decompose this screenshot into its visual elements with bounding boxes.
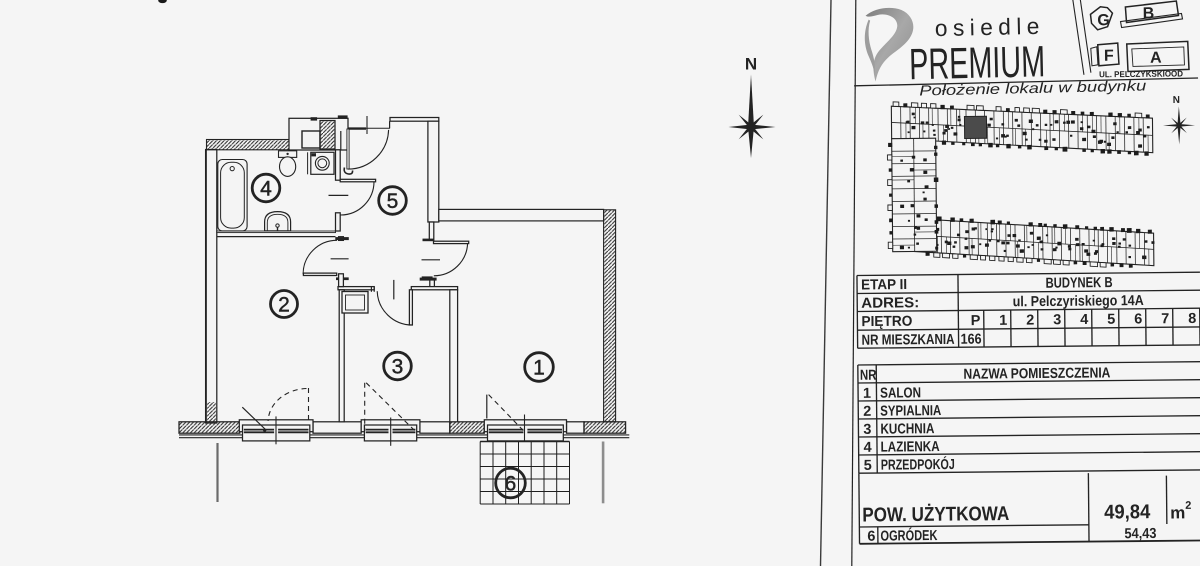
svg-text:ADRES:: ADRES: bbox=[861, 295, 919, 312]
svg-text:1: 1 bbox=[533, 357, 545, 380]
svg-text:6: 6 bbox=[1134, 311, 1142, 327]
svg-text:m: m bbox=[1170, 503, 1185, 522]
svg-text:ETAP II: ETAP II bbox=[861, 277, 907, 293]
svg-text:54,43: 54,43 bbox=[1124, 526, 1156, 542]
svg-text:2: 2 bbox=[863, 404, 871, 420]
svg-text:N: N bbox=[1173, 95, 1180, 106]
svg-text:NR: NR bbox=[860, 368, 877, 384]
svg-text:POW. UŻYTKOWA: POW. UŻYTKOWA bbox=[862, 502, 1009, 526]
svg-text:6: 6 bbox=[505, 473, 517, 496]
svg-text:166: 166 bbox=[961, 332, 982, 348]
svg-text:5: 5 bbox=[387, 190, 399, 213]
svg-text:2: 2 bbox=[1185, 500, 1191, 512]
svg-text:BUDYNEK B: BUDYNEK B bbox=[1045, 275, 1112, 292]
svg-text:KUCHNIA: KUCHNIA bbox=[880, 421, 935, 438]
svg-text:P: P bbox=[971, 313, 981, 329]
svg-text:3: 3 bbox=[392, 356, 404, 379]
svg-text:LAZIENKA: LAZIENKA bbox=[881, 439, 941, 456]
svg-text:5: 5 bbox=[1107, 312, 1115, 328]
svg-text:NR MIESZKANIA: NR MIESZKANIA bbox=[862, 332, 956, 349]
svg-text:3: 3 bbox=[863, 422, 871, 438]
svg-text:PIĘTRO: PIĘTRO bbox=[861, 314, 912, 330]
svg-text:2: 2 bbox=[1026, 313, 1034, 329]
svg-text:2: 2 bbox=[278, 294, 290, 317]
svg-text:4: 4 bbox=[863, 440, 871, 456]
svg-text:49,84: 49,84 bbox=[1104, 501, 1151, 523]
svg-text:G: G bbox=[1097, 12, 1110, 29]
svg-text:N: N bbox=[745, 55, 757, 74]
svg-text:3: 3 bbox=[1053, 312, 1061, 328]
svg-text:OGRÓDEK: OGRÓDEK bbox=[880, 526, 938, 545]
svg-text:PRZEDPOKÓJ: PRZEDPOKÓJ bbox=[881, 455, 955, 474]
svg-text:5: 5 bbox=[864, 458, 872, 474]
svg-text:F: F bbox=[1104, 48, 1114, 65]
svg-text:UL. PELCZYKSKIOOD: UL. PELCZYKSKIOOD bbox=[1099, 68, 1183, 79]
svg-text:4: 4 bbox=[260, 178, 272, 201]
svg-text:ul. Pelczyriskiego 14A: ul. Pelczyriskiego 14A bbox=[1013, 293, 1145, 310]
svg-text:6: 6 bbox=[867, 529, 875, 545]
svg-text:NAZWA POMIESZCZENIA: NAZWA POMIESZCZENIA bbox=[963, 365, 1111, 382]
svg-text:A: A bbox=[1150, 50, 1162, 67]
svg-text:7: 7 bbox=[1161, 311, 1169, 327]
svg-text:SALON: SALON bbox=[880, 385, 921, 401]
svg-text:4: 4 bbox=[1080, 312, 1088, 328]
svg-text:B: B bbox=[1143, 5, 1155, 22]
svg-text:SYPIALNIA: SYPIALNIA bbox=[880, 403, 942, 420]
svg-text:1: 1 bbox=[999, 313, 1007, 329]
svg-text:1: 1 bbox=[863, 386, 871, 402]
svg-text:osiedle: osiedle bbox=[935, 13, 1046, 41]
svg-text:8: 8 bbox=[1188, 311, 1196, 327]
